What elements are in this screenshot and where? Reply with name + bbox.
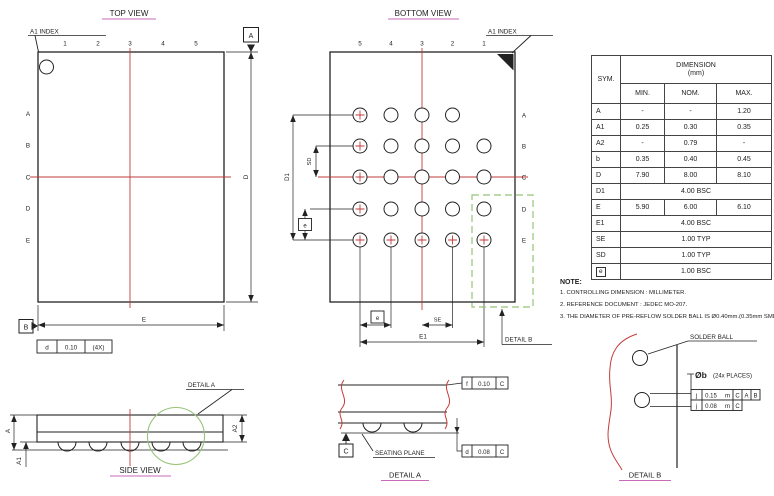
tv-col-5: 5: [194, 41, 198, 48]
tv-col-2: 2: [96, 41, 100, 48]
da-fcf-bottom-sym: d: [465, 450, 468, 456]
da-fcf-bottom-datum: C: [500, 450, 505, 456]
detail-a-callout-label: DETAIL A: [188, 382, 216, 389]
tv-col-4: 4: [161, 41, 165, 48]
dimension-header-line1: DIMENSION: [621, 62, 771, 70]
da-coplanarity-arrow: [455, 427, 460, 433]
tv-row-e: E: [26, 238, 30, 245]
db-fcf2-datum1: C: [735, 404, 740, 410]
da-coplanarity-leader: [457, 418, 462, 451]
db-fcf-row1: j 0.15 m C A B: [691, 390, 760, 401]
db-fcf2-tol: 0.08: [705, 404, 717, 410]
solder-ball-leader: [648, 341, 688, 354]
db-fcf1-tol: 0.15: [705, 393, 717, 399]
a1-index-triangle: [497, 54, 514, 71]
dimension-table: SYM. DIMENSION (mm) MIN. NOM. MAX. A--1.…: [591, 55, 771, 280]
solder-ball-label: SOLDER BALL: [690, 334, 734, 341]
d-dim-label: D: [243, 174, 250, 179]
table-row: A10.250.300.35: [592, 120, 772, 136]
da-balls: [363, 423, 422, 432]
table-row: D7.908.008.10: [592, 168, 772, 184]
da-break-right: [445, 380, 450, 429]
bv-row-e: E: [522, 238, 526, 245]
da-fcf-bottom-tol: 0.08: [478, 450, 490, 456]
ball-diameter-label: Øb: [695, 370, 707, 380]
datum-b-label: B: [24, 325, 29, 332]
bv-col-2: 2: [451, 41, 455, 48]
table-row: A2-0.79-: [592, 136, 772, 152]
se-dim-label: SE: [434, 318, 442, 324]
detail-a-view: f 0.10 C d 0.08 C C SEATING PLANE DETAIL…: [338, 377, 508, 481]
da-top-leader: [447, 383, 462, 385]
da-break-left: [340, 380, 345, 429]
datum-b-triangle: [32, 322, 39, 330]
notes-heading: NOTE:: [560, 279, 772, 286]
side-view: A A1 A2 DETAIL A SIDE VIEW: [5, 382, 247, 476]
table-row: A--1.20: [592, 104, 772, 120]
db-ball-top: [633, 351, 648, 366]
da-fcf-top-datum: C: [500, 382, 505, 388]
tv-fcf: d 0.10 (4X): [37, 340, 112, 353]
tv-col-3: 3: [128, 41, 132, 48]
db-fcf1-datum1: C: [735, 393, 740, 399]
bv-col-1: 1: [482, 41, 486, 48]
detail-a-zone-circle: [148, 408, 205, 465]
tv-fcf-sym: d: [45, 345, 49, 352]
dimension-header-unit: (mm): [621, 70, 771, 78]
top-view-title: TOP VIEW: [110, 9, 149, 18]
bv-row-d: D: [522, 207, 527, 214]
nom-header: NOM.: [665, 84, 717, 104]
bottom-view: BOTTOM VIEW A1 INDEX 5 4 3 2 1 A B C D E: [285, 9, 553, 347]
db-fcf1-sym: j: [695, 393, 697, 399]
a2-dim-label: A2: [232, 424, 239, 432]
d1-dim-label: D1: [285, 173, 291, 181]
db-ball-bottom: [635, 393, 650, 408]
tv-row-a: A: [26, 111, 31, 118]
boxed-e-symbol: e: [596, 267, 606, 277]
seating-plane-leader: [362, 434, 373, 451]
bv-col-4: 4: [389, 41, 393, 48]
datum-c-label: C: [343, 449, 348, 456]
bv-row-b: B: [522, 144, 526, 151]
detail-b-title: DETAIL B: [629, 471, 662, 480]
bv-col-3: 3: [420, 41, 424, 48]
db-fcf2-sym: j: [695, 404, 697, 410]
tv-a1-leader: [35, 36, 39, 53]
bv-row-a: A: [522, 113, 527, 120]
da-fcf-top: f 0.10 C: [462, 377, 508, 389]
bv-col-5: 5: [358, 41, 362, 48]
datum-a-label: A: [249, 33, 254, 40]
db-fcf1-mod: m: [725, 393, 730, 399]
sym-header: SYM.: [592, 56, 621, 104]
db-fcf1-datum2: A: [744, 393, 748, 399]
sd-dim-label: SD: [307, 158, 313, 166]
detail-b-callout-label: DETAIL B: [505, 337, 532, 344]
e-dim-label: E: [142, 317, 146, 324]
bv-a1-index-label: A1 INDEX: [488, 29, 517, 36]
ball-dia-leader: [687, 374, 694, 390]
a1-dim-label: A1: [16, 457, 23, 465]
note-item-3: 3. THE DIAMETER OF PRE-REFLOW SOLDER BAL…: [560, 314, 772, 320]
tv-row-d: D: [26, 206, 31, 213]
tv-fcf-qty: (4X): [93, 345, 105, 352]
detail-a-title: DETAIL A: [389, 471, 421, 480]
tv-row-c: C: [26, 175, 31, 182]
table-row: E14.00 BSC: [592, 216, 772, 232]
a1-index-circle: [40, 60, 54, 74]
detail-a-callout-leader: [198, 390, 232, 415]
da-fcf-top-tol: 0.10: [478, 382, 490, 388]
table-row: SD1.00 TYP: [592, 248, 772, 264]
note-item-2: 2. REFERENCE DOCUMENT : JEDEC MO-207.: [560, 302, 772, 308]
min-header: MIN.: [621, 84, 665, 104]
bv-row-c: C: [522, 175, 527, 182]
top-view: TOP VIEW 1 2 3 4 5 A B C D E A1 INDEX A …: [19, 9, 259, 353]
datum-a-triangle: [247, 45, 255, 53]
bv-a1-leader: [512, 36, 531, 54]
table-row: D14.00 BSC: [592, 184, 772, 200]
ball-places-label: (24x PLACES): [713, 374, 752, 380]
table-row: b0.350.400.45: [592, 152, 772, 168]
notes-block: NOTE: 1. CONTROLLING DIMENSION : MILLIME…: [560, 279, 772, 326]
db-fcf2-mod: m: [725, 404, 730, 410]
max-header: MAX.: [717, 84, 772, 104]
da-fcf-bottom: d 0.08 C: [462, 445, 508, 457]
note-item-1: 1. CONTROLLING DIMENSION : MILLIMETER.: [560, 290, 772, 296]
tv-row-b: B: [26, 143, 30, 150]
seating-plane-label: SEATING PLANE: [375, 450, 425, 457]
bottom-view-title: BOTTOM VIEW: [395, 9, 452, 18]
db-fcf-row2: j 0.08 m C: [691, 400, 742, 411]
db-fcf1-datum3: B: [753, 393, 757, 399]
tv-fcf-tol: 0.10: [65, 345, 78, 352]
a-dim-label: A: [5, 428, 12, 433]
detail-b-view: SOLDER BALL Øb (24x PLACES) j 0.15 m C A…: [608, 334, 760, 481]
db-break-curve: [608, 334, 637, 470]
side-view-title: SIDE VIEW: [119, 466, 161, 475]
e1-dim-label: E1: [419, 334, 427, 341]
tv-col-1: 1: [63, 41, 67, 48]
table-row: e1.00 BSC: [592, 264, 772, 280]
dimension-header: DIMENSION (mm): [621, 56, 772, 84]
table-row: E5.906.006.10: [592, 200, 772, 216]
tv-a1-index-label: A1 INDEX: [30, 29, 59, 36]
table-row: SE1.00 TYP: [592, 232, 772, 248]
datum-c-triangle: [342, 433, 350, 441]
